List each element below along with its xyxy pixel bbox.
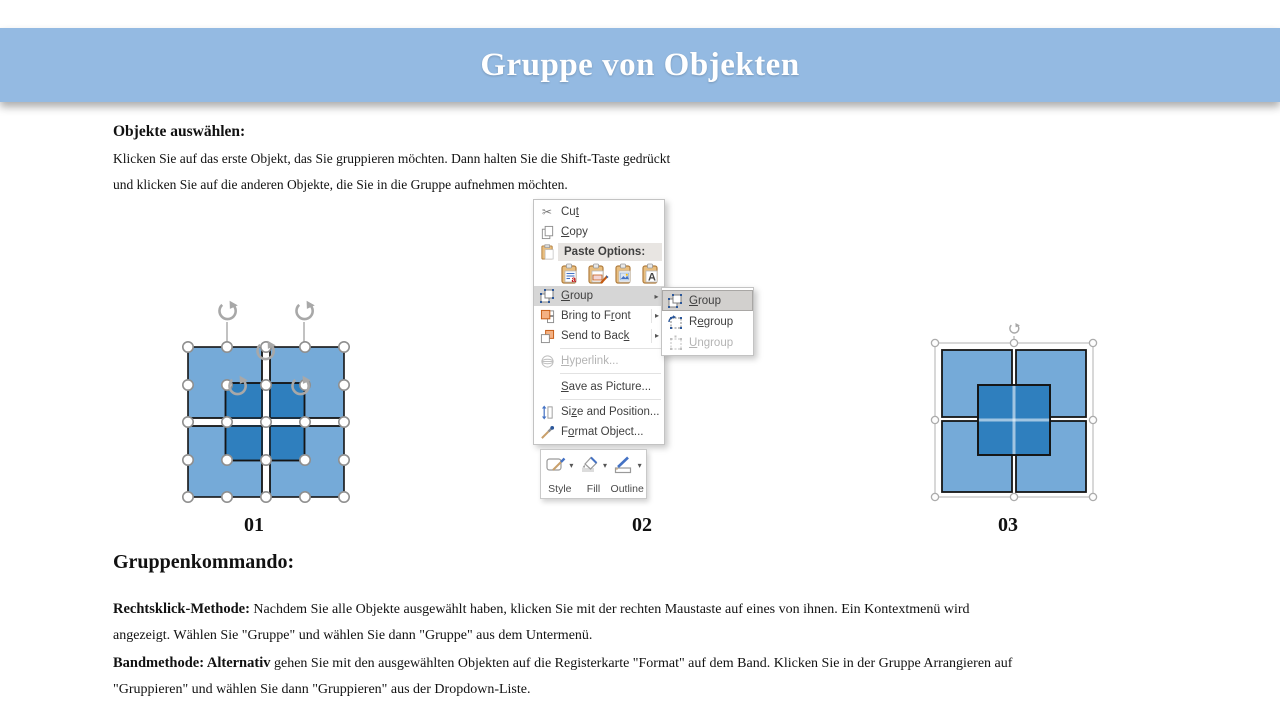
submenu-item-ungroup[interactable]: Ungroup xyxy=(662,332,753,353)
paste-option-keep-text-only[interactable]: A xyxy=(641,263,663,285)
body-text-line: angezeigt. Wählen Sie "Gruppe" und wähle… xyxy=(113,628,592,644)
menu-item-size-and-position[interactable]: Size and Position... xyxy=(534,402,664,422)
style-button-label: Style xyxy=(548,483,571,495)
regroup-icon xyxy=(664,314,686,330)
menu-separator xyxy=(560,348,661,349)
body-text-line: "Gruppieren" und wählen Sie dann "Gruppi… xyxy=(113,682,530,698)
paste-option-keep-source-formatting[interactable]: a xyxy=(560,263,582,285)
submenu-item-regroup[interactable]: Regroup xyxy=(662,311,753,332)
menu-item-hyperlink[interactable]: Hyperlink... xyxy=(534,351,664,371)
menu-item-send-to-back[interactable]: Send to Back ▸ xyxy=(534,326,664,346)
menu-item-label: Size and Position... xyxy=(558,406,662,418)
rotate-handle-icon xyxy=(1010,323,1020,333)
menu-item-save-as-picture[interactable]: Save as Picture... xyxy=(534,376,664,397)
svg-text:a: a xyxy=(572,275,577,284)
method-name: Bandmethode: Alternativ xyxy=(113,655,270,671)
send-to-back-icon xyxy=(536,329,558,344)
size-and-position-icon xyxy=(536,405,558,420)
figure-01-selected-shapes xyxy=(180,300,356,506)
menu-item-label: Regroup xyxy=(686,316,751,328)
menu-item-label: Save as Picture... xyxy=(558,381,662,393)
menu-item-label: Group xyxy=(558,290,651,302)
paste-options-row: a A xyxy=(534,261,664,286)
title-banner: Gruppe von Objekten xyxy=(0,28,1280,102)
style-button[interactable]: ▾ Style xyxy=(543,453,577,495)
ungroup-icon xyxy=(664,335,686,351)
menu-item-label: Cut xyxy=(558,206,662,218)
select-objects-heading: Objekte auswählen: xyxy=(113,123,245,141)
menu-separator xyxy=(560,373,661,374)
body-text-line: und klicken Sie auf die anderen Objekte,… xyxy=(113,177,568,193)
mini-toolbar: ▾ Style ▾ Fill ▾ Outline xyxy=(540,449,647,499)
fill-icon: ▾ xyxy=(580,453,607,477)
menu-item-label: Send to Back xyxy=(558,330,651,342)
body-text-line: Klicken Sie auf das erste Objekt, das Si… xyxy=(113,151,670,167)
figure-label-02: 02 xyxy=(612,514,672,537)
copy-icon xyxy=(536,225,558,240)
menu-item-copy[interactable]: Copy xyxy=(534,222,664,242)
rotate-handle-icon xyxy=(219,301,237,319)
figure-label-03: 03 xyxy=(978,514,1038,537)
menu-item-label: Format Object... xyxy=(558,426,662,438)
paste-icon xyxy=(536,244,558,260)
fill-button[interactable]: ▾ Fill xyxy=(577,453,611,495)
menu-item-label: Ungroup xyxy=(686,337,751,349)
dropdown-arrow-icon: ▾ xyxy=(638,461,642,470)
menu-item-group[interactable]: Group ▸ xyxy=(534,286,664,306)
menu-item-label: Copy xyxy=(558,226,662,238)
scissors-icon: ✂ xyxy=(536,205,558,219)
body-text-line: Bandmethode: Alternativ gehen Sie mit de… xyxy=(113,655,1012,672)
context-menu: ✂ Cut Copy Paste Options: a A Group ▸ xyxy=(533,199,665,445)
group-icon xyxy=(664,293,686,309)
paste-option-embed[interactable] xyxy=(614,263,636,285)
menu-item-format-object[interactable]: Format Object... xyxy=(534,422,664,442)
figure-03-grouped-shapes xyxy=(925,318,1101,504)
group-submenu: Group Regroup Ungroup xyxy=(661,287,754,356)
menu-item-cut[interactable]: ✂ Cut xyxy=(534,202,664,222)
body-text-line: Rechtsklick-Methode: Nachdem Sie alle Ob… xyxy=(113,601,970,618)
menu-item-label: Hyperlink... xyxy=(558,355,662,367)
outline-button-label: Outline xyxy=(611,483,644,495)
fill-button-label: Fill xyxy=(587,483,600,495)
method-name: Rechtsklick-Methode: xyxy=(113,601,250,617)
paste-options-label: Paste Options: xyxy=(558,243,662,261)
paste-option-picture[interactable] xyxy=(587,263,609,285)
slide-title: Gruppe von Objekten xyxy=(0,28,1280,102)
dropdown-arrow-icon: ▾ xyxy=(603,461,607,470)
menu-item-paste-options: Paste Options: xyxy=(534,242,664,261)
outline-button[interactable]: ▾ Outline xyxy=(610,453,644,495)
figure-label-01: 01 xyxy=(224,514,284,537)
menu-item-label: Bring to Front xyxy=(558,310,651,322)
hyperlink-icon xyxy=(536,354,558,369)
menu-item-bring-to-front[interactable]: Bring to Front ▸ xyxy=(534,306,664,326)
menu-separator xyxy=(560,399,661,400)
rotate-handle-icon xyxy=(296,301,314,319)
outline-icon: ▾ xyxy=(613,453,642,477)
format-object-icon xyxy=(536,425,558,440)
group-icon xyxy=(536,288,558,304)
dropdown-arrow-icon: ▾ xyxy=(569,461,573,470)
bring-to-front-icon xyxy=(536,309,558,324)
group-command-heading: Gruppenkommando: xyxy=(113,551,294,574)
submenu-item-group[interactable]: Group xyxy=(662,290,753,311)
menu-item-label: Group xyxy=(686,295,751,307)
svg-text:A: A xyxy=(648,271,656,283)
shape-style-icon: ▾ xyxy=(546,453,573,477)
